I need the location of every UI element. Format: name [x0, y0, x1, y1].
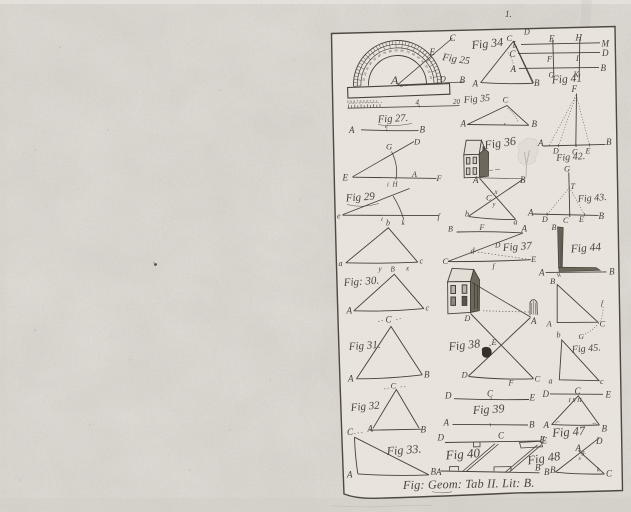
svg-text:Fig 41: Fig 41	[550, 72, 582, 86]
svg-text:g.: g.	[582, 450, 587, 456]
svg-text:C: C	[535, 374, 541, 384]
svg-text:Fig 27.: Fig 27.	[377, 113, 409, 126]
svg-text:B: B	[529, 420, 535, 430]
svg-text:i: i	[387, 182, 389, 189]
svg-text:F: F	[546, 55, 552, 64]
svg-text:Fig 44: Fig 44	[569, 241, 601, 255]
svg-text:A: A	[546, 319, 553, 329]
svg-text:D: D	[439, 75, 446, 84]
svg-text:B: B	[391, 266, 396, 274]
svg-text:F: F	[508, 379, 514, 388]
svg-text:i: i	[381, 216, 383, 223]
svg-text:a: a	[339, 259, 343, 268]
svg-text:C: C	[450, 33, 457, 43]
svg-text:E: E	[530, 254, 537, 264]
svg-text:B: B	[550, 465, 556, 475]
svg-text:C: C	[443, 256, 449, 266]
svg-text:L: L	[512, 40, 518, 50]
svg-text:5: 5	[363, 100, 365, 104]
svg-text:C: C	[486, 193, 492, 203]
svg-text:E: E	[605, 390, 612, 400]
svg-text:D: D	[464, 314, 471, 323]
svg-text:b: b	[465, 210, 469, 219]
svg-text:D: D	[413, 137, 421, 147]
svg-text:B: B	[606, 137, 612, 147]
svg-text:Fig 42.: Fig 42.	[555, 151, 586, 164]
svg-text:C: C	[600, 319, 606, 329]
svg-text:e: e	[337, 212, 341, 221]
svg-text:D: D	[444, 391, 452, 401]
svg-text:9: 9	[350, 100, 352, 104]
svg-text:C: C	[391, 381, 397, 391]
svg-text:F: F	[479, 223, 485, 232]
svg-text:D: D	[595, 436, 603, 446]
svg-text:Fig: 30.: Fig: 30.	[342, 275, 379, 290]
svg-text:1: 1	[375, 100, 377, 104]
svg-text:e: e	[385, 123, 388, 130]
svg-text:F: F	[571, 84, 578, 94]
svg-text:T: T	[571, 182, 576, 191]
svg-text:b: b	[386, 219, 390, 228]
svg-text:B: B	[421, 425, 427, 435]
svg-text:G: G	[579, 332, 585, 341]
svg-text:D: D	[523, 28, 530, 37]
svg-text:C: C	[510, 49, 517, 59]
svg-text:G: G	[564, 164, 570, 174]
svg-text:E: E	[578, 215, 584, 224]
svg-text:c: c	[426, 304, 430, 313]
svg-text:B: B	[552, 223, 557, 232]
svg-text:B: B	[601, 63, 607, 73]
svg-text:E: E	[539, 435, 546, 445]
svg-text:B: B	[609, 267, 615, 277]
svg-text:c: c	[420, 257, 424, 266]
svg-text:E: E	[491, 337, 498, 347]
svg-text:1.: 1.	[505, 9, 512, 19]
svg-text:A: A	[472, 79, 479, 89]
svg-text:Fig 29: Fig 29	[344, 190, 375, 204]
svg-text:D: D	[542, 389, 550, 399]
svg-text:A: A	[472, 175, 479, 185]
svg-text:3: 3	[369, 100, 371, 104]
svg-text:E: E	[342, 173, 349, 183]
svg-text:90: 90	[395, 48, 399, 52]
svg-text:C: C	[563, 216, 569, 225]
svg-text:8: 8	[353, 100, 355, 104]
svg-text:H: H	[392, 181, 399, 189]
svg-text:c: c	[600, 377, 604, 386]
svg-text:B: B	[424, 370, 430, 380]
svg-text:A: A	[435, 467, 442, 477]
svg-text:B: B	[534, 78, 540, 88]
svg-text:D: D	[461, 370, 469, 380]
svg-text:B: B	[460, 75, 466, 85]
svg-text:D: D	[437, 433, 445, 443]
svg-text:C: C	[498, 431, 505, 441]
svg-text:Fig 37: Fig 37	[501, 240, 532, 254]
svg-text:E: E	[429, 47, 436, 57]
svg-text:F: F	[436, 173, 443, 183]
svg-text:G: G	[386, 142, 392, 152]
svg-text:Fig 39: Fig 39	[471, 401, 504, 417]
svg-text:a: a	[549, 377, 553, 386]
svg-text:A: A	[348, 125, 355, 135]
svg-text:Fig: Geom: Tab II. Lit: B.: Fig: Geom: Tab II. Lit: B.	[402, 476, 535, 492]
svg-text:A: A	[390, 73, 399, 87]
svg-text:C: C	[503, 95, 509, 105]
svg-text:k: k	[597, 468, 600, 474]
svg-text:B: B	[448, 225, 453, 234]
svg-text:A: A	[346, 470, 353, 480]
svg-text:B: B	[602, 424, 608, 434]
svg-text:A: A	[521, 224, 528, 234]
svg-text:7: 7	[356, 100, 358, 104]
svg-text:E: E	[548, 34, 555, 44]
svg-text:C: C	[347, 427, 354, 437]
svg-text:Fig 31.: Fig 31.	[347, 339, 381, 353]
svg-text:D: D	[601, 48, 609, 58]
svg-text:4: 4	[366, 100, 368, 104]
svg-text:Fig 45.: Fig 45.	[570, 343, 601, 356]
svg-text:a: a	[514, 218, 518, 227]
svg-text:H: H	[575, 33, 583, 43]
svg-text:20: 20	[453, 98, 461, 106]
svg-text:B: B	[550, 276, 555, 286]
svg-text:Fig 33.: Fig 33.	[385, 442, 422, 458]
svg-text:A: A	[347, 374, 354, 384]
svg-text:A: A	[510, 64, 517, 74]
svg-text:Fig 43.: Fig 43.	[576, 192, 607, 205]
svg-text:B: B	[520, 175, 526, 185]
svg-text:A: A	[538, 268, 545, 278]
svg-text:B: B	[420, 125, 426, 135]
svg-text:D: D	[494, 241, 501, 250]
svg-text:A: A	[411, 170, 417, 179]
svg-text:B: B	[599, 211, 605, 221]
svg-text:A: A	[530, 316, 537, 326]
svg-text:2: 2	[372, 100, 374, 104]
svg-text:6: 6	[360, 100, 362, 104]
svg-text:M: M	[601, 39, 610, 49]
svg-text:B: B	[532, 119, 538, 129]
svg-text:b: b	[557, 331, 561, 340]
svg-text:A: A	[367, 424, 374, 434]
svg-text:C: C	[386, 315, 393, 325]
svg-text:A: A	[346, 306, 353, 316]
svg-text:Fig 47: Fig 47	[551, 424, 587, 440]
svg-text:C: C	[487, 389, 494, 399]
svg-text:D: D	[541, 215, 548, 224]
svg-text:C: C	[606, 469, 613, 479]
svg-text:y: y	[492, 201, 496, 208]
svg-text:A: A	[460, 119, 467, 129]
svg-text:A: A	[575, 443, 582, 453]
svg-text:E: E	[585, 147, 591, 156]
svg-text:E: E	[529, 393, 536, 403]
svg-text:A: A	[543, 420, 550, 430]
svg-text:A: A	[537, 138, 544, 148]
svg-text:A: A	[443, 418, 450, 428]
svg-text:I: I	[575, 54, 579, 63]
svg-text:A: A	[527, 208, 534, 218]
svg-text:C: C	[575, 386, 582, 396]
